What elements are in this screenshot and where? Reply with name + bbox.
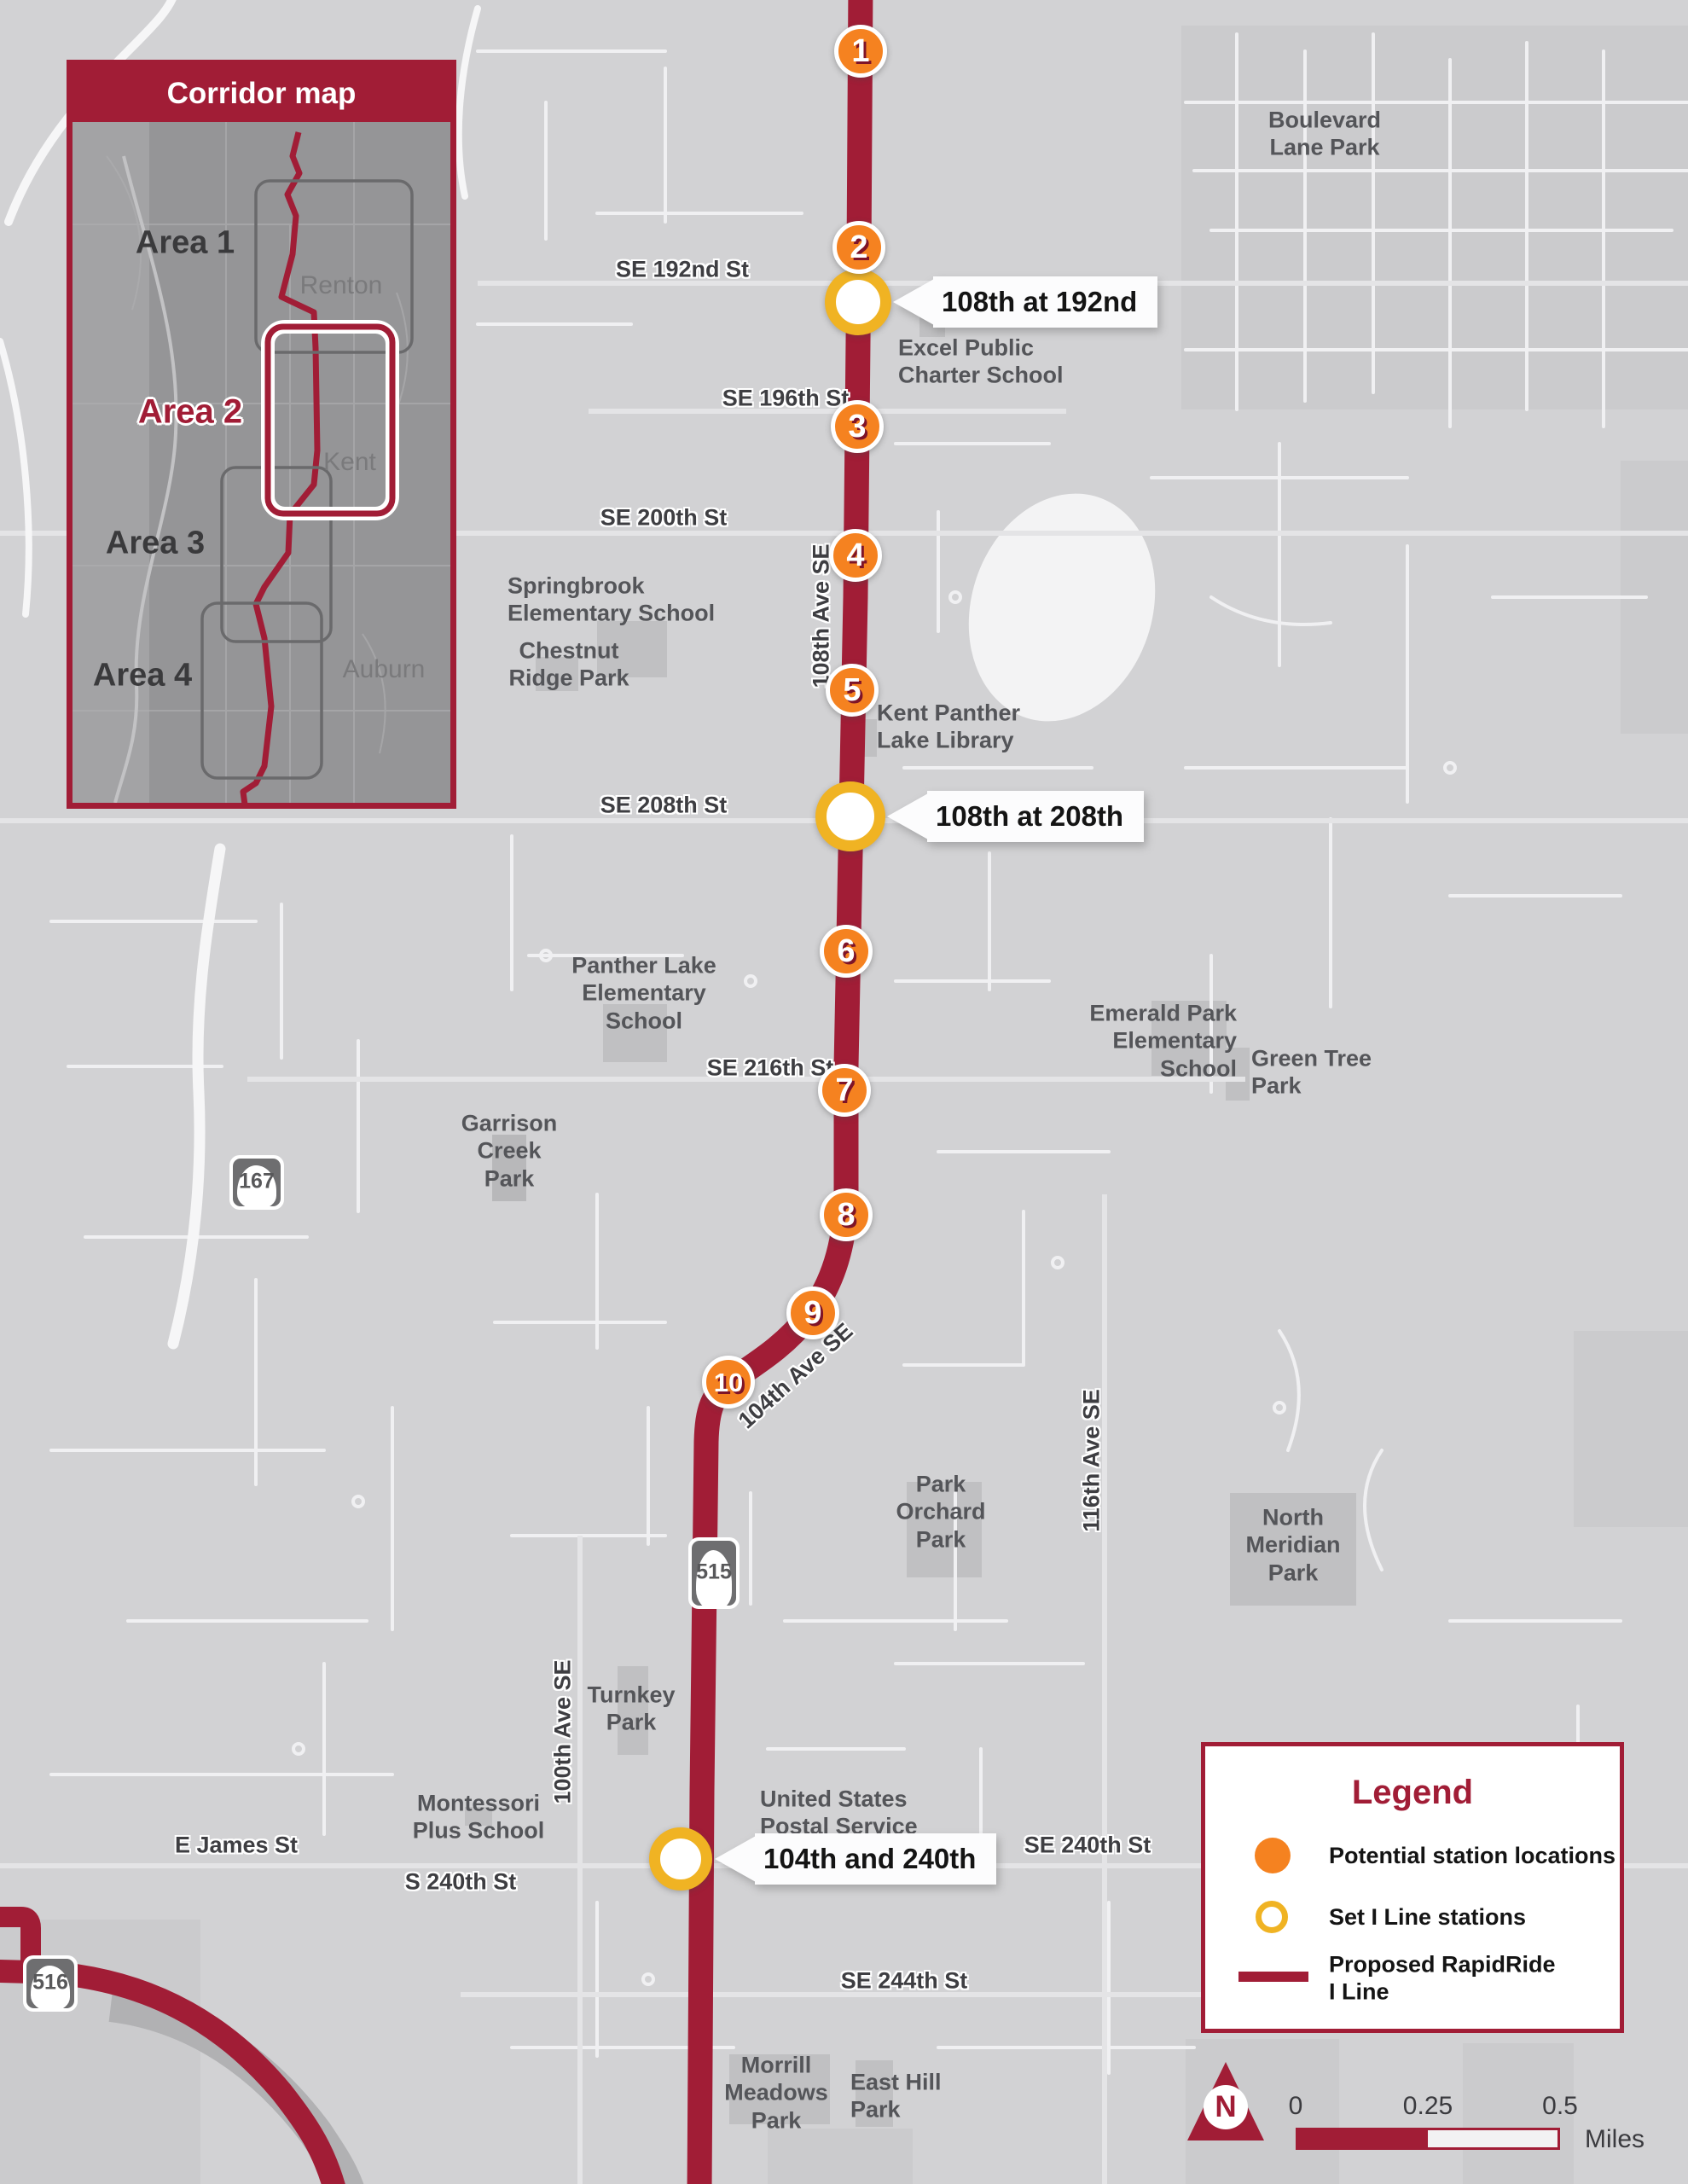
inset-area-2-label: Area 2 <box>138 393 242 432</box>
poi-park-orchard-park: Park Orchard Park <box>896 1470 985 1553</box>
station-marker-5: 5 <box>826 664 879 717</box>
poi-springbrook-elementary: Springbrook Elementary School <box>508 572 715 628</box>
station-marker-10: 10 <box>702 1356 755 1409</box>
callout-arrow-icon <box>887 793 928 839</box>
inset-map-canvas <box>73 122 450 803</box>
station-marker-3: 3 <box>831 400 884 453</box>
street-label-se-200th: SE 200th St <box>600 505 728 531</box>
inset-city-renton: Renton <box>300 271 383 300</box>
station-number: 7 <box>835 1074 853 1107</box>
station-marker-8: 8 <box>820 1188 873 1241</box>
inset-header: Corridor map <box>73 66 450 122</box>
station-marker-1: 1 <box>834 25 887 78</box>
street-label-se-216th: SE 216th St <box>707 1055 834 1082</box>
corridor-inset-map: Corridor map Area 1 Area 2 Area 3 A <box>67 60 456 809</box>
callout-108th-192nd: 108th at 192nd <box>893 276 1157 328</box>
washington-head-icon: 167 <box>233 1159 281 1206</box>
scale-bar-filled-half <box>1298 2130 1428 2147</box>
poi-usps: United States Postal Service <box>760 1786 918 1841</box>
station-number: 4 <box>846 539 864 572</box>
station-number: 9 <box>803 1297 821 1329</box>
poi-chestnut-ridge-park: Chestnut Ridge Park <box>508 637 629 693</box>
inset-area-3-label: Area 3 <box>106 526 205 562</box>
scale-tick-quarter: 0.25 <box>1403 2092 1453 2121</box>
callout-108th-208th: 108th at 208th <box>887 791 1144 842</box>
poi-emerald-park-elementary: Emerald Park Elementary School <box>1089 999 1237 1082</box>
shield-number: 167 <box>233 1169 281 1194</box>
route-line-icon <box>1238 1972 1308 1982</box>
set-station-icon <box>1256 1901 1288 1933</box>
inset-area-4-label: Area 4 <box>93 658 192 694</box>
set-station-108th-208th <box>815 781 885 851</box>
callout-label: 104th and 240th <box>755 1833 996 1885</box>
poi-north-meridian-park: North Meridian Park <box>1245 1503 1340 1586</box>
station-number: 3 <box>848 410 866 443</box>
street-label-se-208th: SE 208th St <box>600 793 728 819</box>
poi-green-tree-park: Green Tree Park <box>1251 1045 1372 1101</box>
callout-arrow-icon <box>893 279 934 325</box>
scale-tick-half: 0.5 <box>1542 2092 1578 2121</box>
route-shield-515: 515 <box>688 1537 740 1609</box>
street-label-se-240th: SE 240th St <box>1024 1833 1151 1859</box>
poi-excel-charter-school: Excel Public Charter School <box>898 334 1064 390</box>
station-number: 5 <box>843 674 861 706</box>
street-label-100th-ave: 100th Ave SE <box>550 1659 577 1804</box>
shield-number: 516 <box>26 1970 74 1995</box>
legend-title: Legend <box>1205 1774 1620 1812</box>
legend-item-proposed-line: Proposed RapidRide I Line <box>1329 1951 1556 2007</box>
legend-item-set-stations: Set I Line stations <box>1329 1903 1526 1931</box>
station-number: 6 <box>837 935 855 967</box>
callout-label: 108th at 208th <box>927 791 1144 842</box>
set-station-108th-192nd <box>825 269 891 335</box>
washington-head-icon: 515 <box>692 1541 736 1606</box>
station-number: 8 <box>837 1199 855 1231</box>
poi-east-hill-park: East Hill Park <box>850 2069 942 2124</box>
street-label-e-james: E James St <box>175 1833 298 1859</box>
corridor-map-page: { "inset": { "title": "Corridor map", "a… <box>0 0 1688 2184</box>
callout-104th-240th: 104th and 240th <box>715 1833 996 1885</box>
shield-number: 515 <box>692 1560 736 1584</box>
route-shield-516: 516 <box>23 1955 78 2012</box>
north-circle: N <box>1204 2085 1248 2129</box>
legend-item-potential-stations: Potential station locations <box>1329 1842 1615 1869</box>
washington-head-icon: 516 <box>26 1959 74 2008</box>
station-marker-7: 7 <box>818 1064 871 1117</box>
street-label-se-192nd: SE 192nd St <box>616 257 749 283</box>
poi-kent-panther-lake-library: Kent Panther Lake Library <box>877 700 1020 755</box>
poi-garrison-creek-park: Garrison Creek Park <box>461 1109 558 1192</box>
callout-label: 108th at 192nd <box>933 276 1157 328</box>
inset-area-1-label: Area 1 <box>136 225 235 262</box>
north-arrow: N <box>1187 2062 1264 2140</box>
street-label-116th-ave: 116th Ave SE <box>1079 1389 1105 1532</box>
poi-morrill-meadows-park: Morrill Meadows Park <box>724 2051 828 2134</box>
inset-map-body: Area 1 Area 2 Area 3 Area 4 Renton Kent … <box>73 122 450 803</box>
scale-bar <box>1296 2128 1560 2150</box>
poi-montessori-plus-school: Montessori Plus School <box>413 1790 545 1845</box>
inset-title: Corridor map <box>167 77 357 111</box>
street-label-s-240th: S 240th St <box>405 1869 517 1896</box>
station-number: 10 <box>714 1369 743 1396</box>
station-marker-6: 6 <box>820 925 873 978</box>
set-station-104th-240th <box>649 1827 712 1891</box>
poi-turnkey-park: Turnkey Park <box>587 1682 675 1737</box>
street-label-se-244th: SE 244th St <box>841 1968 968 1995</box>
scale-bar-empty-half <box>1428 2130 1557 2147</box>
station-number: 1 <box>851 35 869 67</box>
poi-panther-lake-elementary: Panther Lake Elementary School <box>571 951 716 1034</box>
station-marker-2: 2 <box>832 221 885 274</box>
potential-station-icon <box>1255 1838 1291 1873</box>
inset-city-auburn: Auburn <box>343 655 426 684</box>
street-label-se-196th: SE 196th St <box>722 386 850 412</box>
callout-arrow-icon <box>715 1836 756 1882</box>
route-shield-167: 167 <box>229 1155 284 1210</box>
north-label: N <box>1215 2090 1236 2124</box>
scale-unit-label: Miles <box>1585 2125 1644 2154</box>
poi-boulevard-lane-park: Boulevard Lane Park <box>1268 107 1381 162</box>
station-marker-9: 9 <box>786 1287 839 1339</box>
inset-city-kent: Kent <box>323 448 376 477</box>
station-marker-4: 4 <box>829 529 882 582</box>
scale-tick-0: 0 <box>1289 2092 1303 2121</box>
station-number: 2 <box>850 231 867 264</box>
legend-panel: Legend Potential station locations Set I… <box>1201 1742 1624 2033</box>
